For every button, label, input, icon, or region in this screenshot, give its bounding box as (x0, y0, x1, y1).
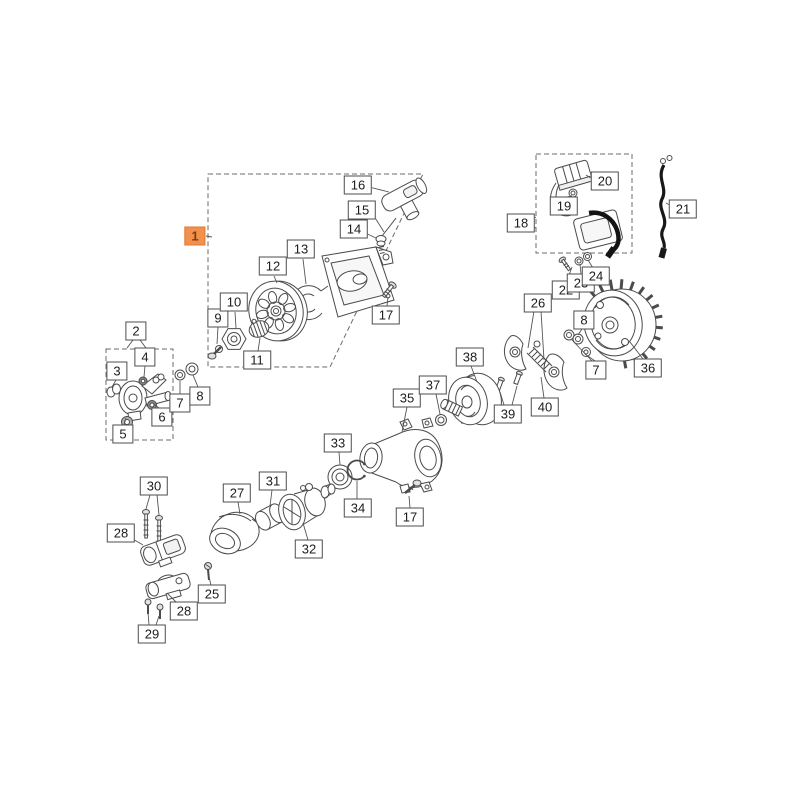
callout-layer: 1234567891011121314151617171819202122232… (0, 0, 800, 800)
callout-2: 2 (125, 322, 146, 341)
callout-16: 16 (344, 176, 372, 195)
callout-3: 3 (106, 362, 127, 381)
callout-37: 37 (419, 376, 447, 395)
callout-26: 26 (524, 294, 552, 313)
callout-19: 19 (550, 197, 578, 216)
callout-33: 33 (324, 434, 352, 453)
callout-10: 10 (220, 293, 248, 312)
callout-35: 35 (393, 389, 421, 408)
callout-30: 30 (140, 477, 168, 496)
callout-5: 5 (112, 425, 133, 444)
callout-40: 40 (531, 398, 559, 417)
parts-diagram-page: 1234567891011121314151617171819202122232… (0, 0, 800, 800)
callout-14: 14 (340, 220, 368, 239)
callout-8b: 8 (573, 311, 594, 330)
callout-27: 27 (223, 484, 251, 503)
callout-18: 18 (507, 214, 535, 233)
callout-7a: 7 (169, 394, 190, 413)
callout-17a: 17 (372, 306, 400, 325)
callout-7b: 7 (585, 361, 606, 380)
callout-28a: 28 (107, 524, 135, 543)
callout-25: 25 (198, 585, 226, 604)
callout-38: 38 (456, 348, 484, 367)
callout-21: 21 (669, 200, 697, 219)
callout-36: 36 (634, 359, 662, 378)
callout-1: 1 (184, 227, 205, 246)
callout-39: 39 (494, 405, 522, 424)
callout-17b: 17 (396, 508, 424, 527)
callout-31: 31 (259, 472, 287, 491)
callout-24: 24 (582, 267, 610, 286)
callout-13: 13 (287, 240, 315, 259)
callout-29: 29 (138, 625, 166, 644)
callout-4: 4 (134, 348, 155, 367)
callout-28b: 28 (170, 602, 198, 621)
callout-34: 34 (344, 499, 372, 518)
callout-8a: 8 (189, 387, 210, 406)
callout-32: 32 (295, 540, 323, 559)
callout-12: 12 (259, 257, 287, 276)
callout-20: 20 (591, 172, 619, 191)
callout-11: 11 (243, 351, 271, 370)
callout-15: 15 (348, 201, 376, 220)
